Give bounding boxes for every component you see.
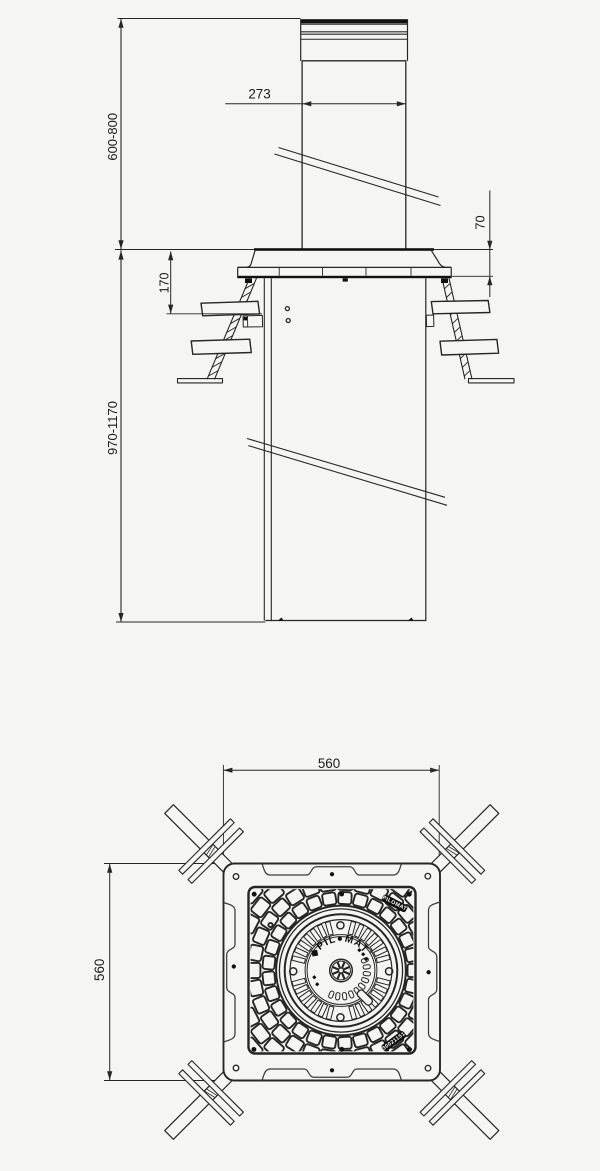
svg-text:600-800: 600-800 [105, 113, 120, 161]
svg-text:170: 170 [158, 273, 172, 294]
svg-text:560: 560 [92, 959, 107, 981]
svg-text:273: 273 [248, 86, 270, 101]
svg-text:560: 560 [318, 756, 340, 771]
svg-text:970-1170: 970-1170 [105, 401, 120, 455]
svg-text:70: 70 [473, 215, 488, 229]
